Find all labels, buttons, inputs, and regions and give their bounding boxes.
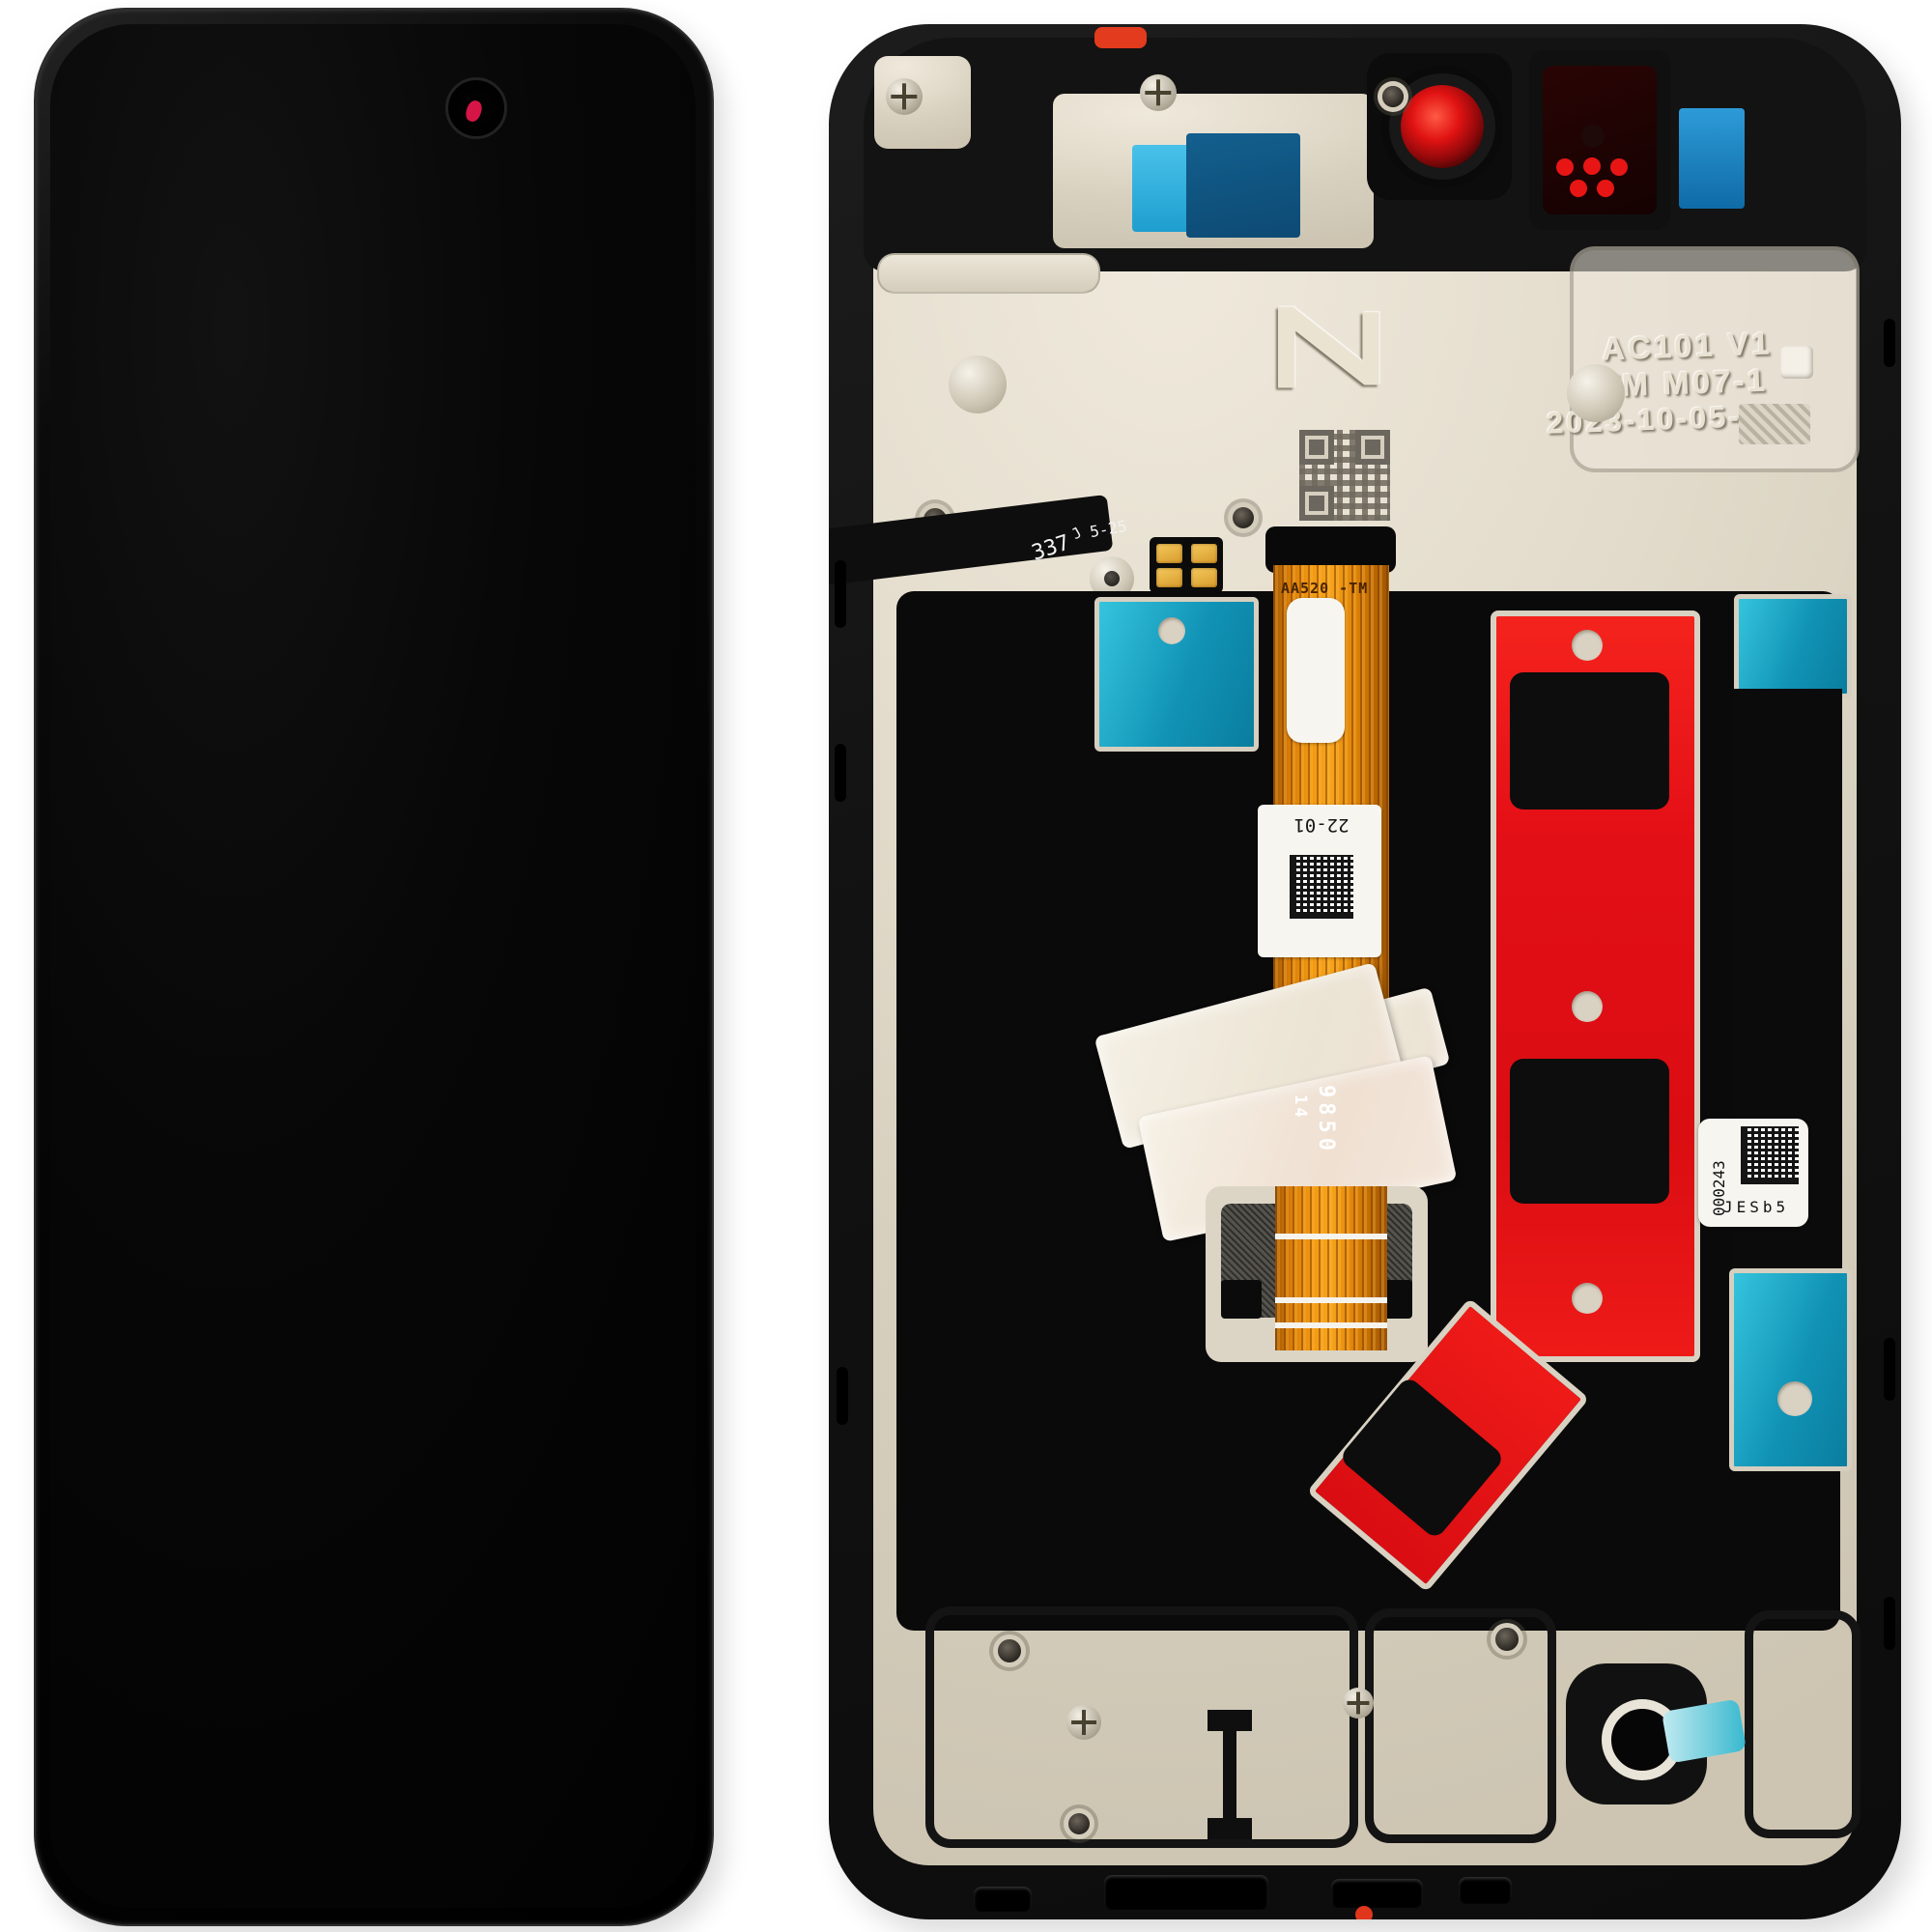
etched-text-line1: AC101 V1	[1602, 326, 1773, 368]
frame-slot	[837, 1367, 848, 1425]
frame-slot	[1884, 319, 1895, 367]
flex-stiffener-line	[1275, 1297, 1387, 1303]
bottom-channel	[925, 1606, 1358, 1848]
frame-slot	[835, 560, 846, 628]
camera-glint	[464, 99, 484, 124]
flex-white-label	[1287, 598, 1345, 743]
screw-hole	[1068, 1813, 1090, 1834]
adhesive-hole	[1777, 1381, 1812, 1416]
adhesive-strip-cyan-right-top	[1734, 594, 1852, 698]
phone-back-frame: Z AC101 V1 TM M07-1 2023-10-05-9L 337 J …	[829, 24, 1901, 1919]
product-photo: Z AC101 V1 TM M07-1 2023-10-05-9L 337 J …	[0, 0, 1932, 1932]
gold-pad	[1156, 568, 1182, 587]
dome-disc	[1567, 364, 1625, 422]
screw	[1066, 1705, 1101, 1740]
bottom-connector-notch	[1104, 1875, 1268, 1910]
dome-disc	[949, 355, 1007, 413]
adhesive-hole	[1572, 1283, 1603, 1314]
bottom-channel	[1745, 1610, 1861, 1838]
bottom-connector-notch	[974, 1887, 1032, 1912]
adhesive-hole	[1158, 617, 1185, 644]
earpiece-dot	[1597, 180, 1614, 197]
screw	[886, 78, 923, 115]
qr-code	[1299, 430, 1390, 521]
flex-code-label: 22-01	[1258, 805, 1381, 957]
frame-slot	[1884, 1597, 1895, 1650]
front-camera-lens	[1401, 85, 1484, 168]
adhesive-strip-cyan-right-bottom	[1729, 1268, 1852, 1471]
bottom-channel	[1365, 1608, 1556, 1843]
i-cutout	[1223, 1729, 1236, 1820]
phone-front	[34, 8, 714, 1926]
gold-pad	[1156, 544, 1182, 563]
hatched-pad	[1739, 404, 1810, 444]
bottom-connector-notch	[1331, 1879, 1423, 1908]
screw-hole	[998, 1639, 1021, 1662]
red-bottom-marker	[1355, 1906, 1373, 1919]
flex-stiffener-line	[1275, 1322, 1387, 1328]
flex-label-code: 22-01	[1279, 814, 1364, 836]
adhesive-patch-blue-right	[1679, 108, 1745, 209]
gold-contact-pads	[1150, 537, 1223, 593]
i-cutout	[1207, 1818, 1252, 1839]
earpiece-dot	[1583, 157, 1601, 175]
embossed-bar	[877, 253, 1100, 294]
serial-label: 000243 JESb5	[1698, 1119, 1808, 1227]
white-square-pad	[1780, 346, 1813, 379]
flex-part-number: AA520 -TM	[1281, 580, 1389, 597]
screw-hole	[1233, 507, 1254, 528]
gold-pad	[1191, 544, 1217, 563]
flex-serial-big: 9850	[1314, 1085, 1338, 1181]
data-matrix	[1741, 1126, 1799, 1184]
data-matrix	[1290, 855, 1353, 919]
earpiece-dot	[1610, 158, 1628, 176]
adhesive-patch-blue-dark	[1186, 133, 1300, 238]
screw-hole	[1495, 1628, 1519, 1651]
adhesive-hole	[1572, 991, 1603, 1022]
black-patch	[1510, 1059, 1669, 1204]
earpiece-dot	[1556, 158, 1574, 176]
punch-hole-camera	[445, 77, 507, 139]
serial-code: JESb5	[1723, 1198, 1789, 1216]
bottom-connector-notch	[1459, 1877, 1512, 1904]
z-logo: Z	[1257, 262, 1400, 436]
gold-pad	[1191, 568, 1217, 587]
i-cutout	[1207, 1710, 1252, 1731]
adhesive-hole	[1572, 630, 1603, 661]
black-patch	[1510, 672, 1669, 810]
frame-slot	[835, 744, 846, 802]
connector-notch	[1221, 1280, 1262, 1319]
display-glass	[50, 24, 696, 1908]
earpiece-sensor	[1581, 125, 1605, 148]
screw	[1140, 74, 1177, 111]
adhesive-strip-red	[1491, 611, 1700, 1362]
flex-serial-small: 14	[1291, 1094, 1310, 1143]
earpiece-dot	[1570, 180, 1587, 197]
flex-stiffener-line	[1275, 1234, 1387, 1239]
red-top-button	[1094, 27, 1147, 48]
screw-hole	[1382, 86, 1404, 107]
screw	[1343, 1688, 1374, 1719]
frame-slot	[1884, 1338, 1895, 1401]
